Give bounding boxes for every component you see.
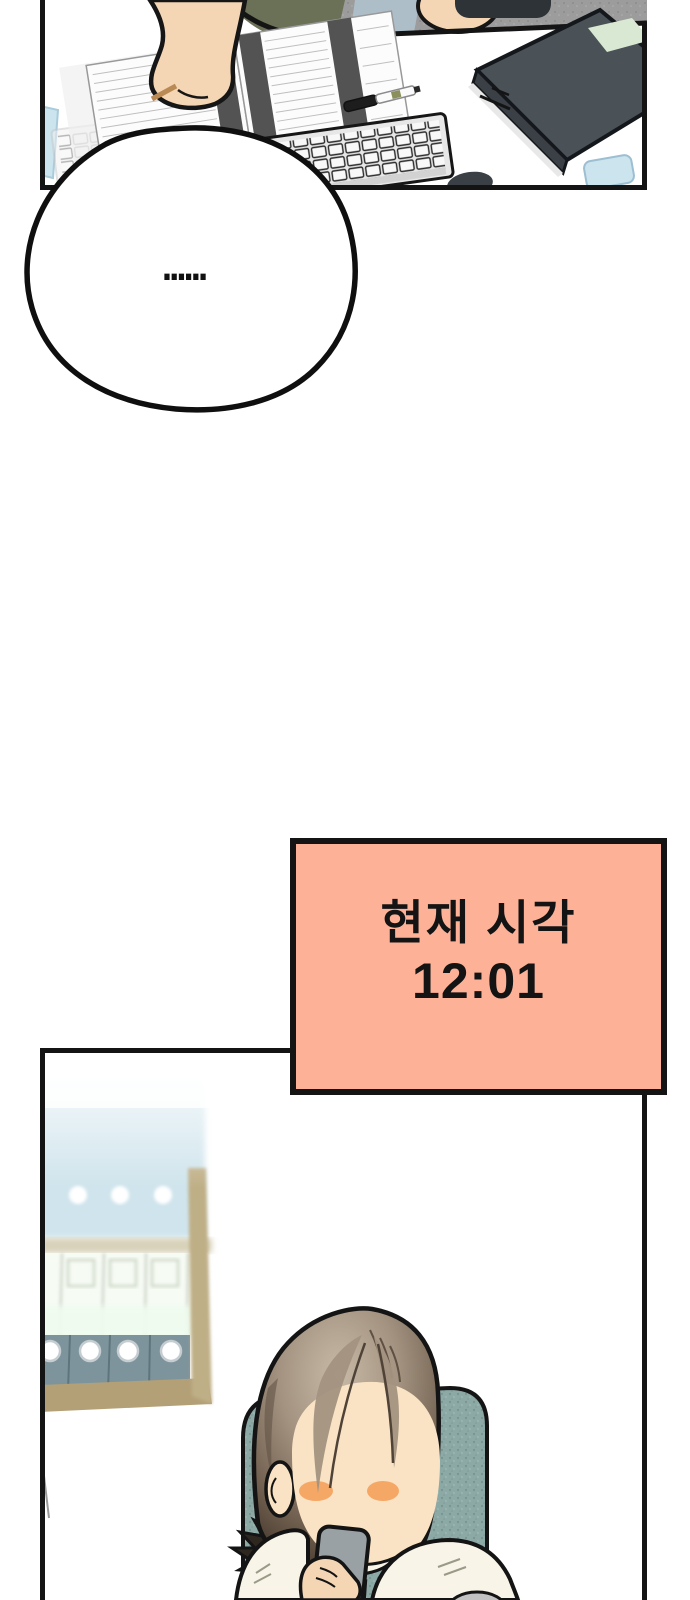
bookshelf <box>40 1048 230 1412</box>
time-caption-line1: 현재 시각 <box>380 894 576 953</box>
speech-bubble-text: …… <box>163 248 206 289</box>
time-caption-lines: 현재 시각 12:01 <box>380 894 576 1010</box>
chair-back-silhouette <box>455 0 551 18</box>
office-scene-art <box>40 1048 647 1600</box>
arm <box>150 0 245 108</box>
webtoon-page: …… <box>0 0 690 1600</box>
shelf-divider <box>40 1238 212 1253</box>
time-caption-box: 현재 시각 12:01 <box>290 838 667 1095</box>
time-caption-line2: 12:01 <box>380 953 576 1011</box>
shelf-white-binders <box>40 1253 208 1338</box>
speech-bubble: …… <box>16 122 364 416</box>
office-scene-panel <box>40 1048 647 1600</box>
